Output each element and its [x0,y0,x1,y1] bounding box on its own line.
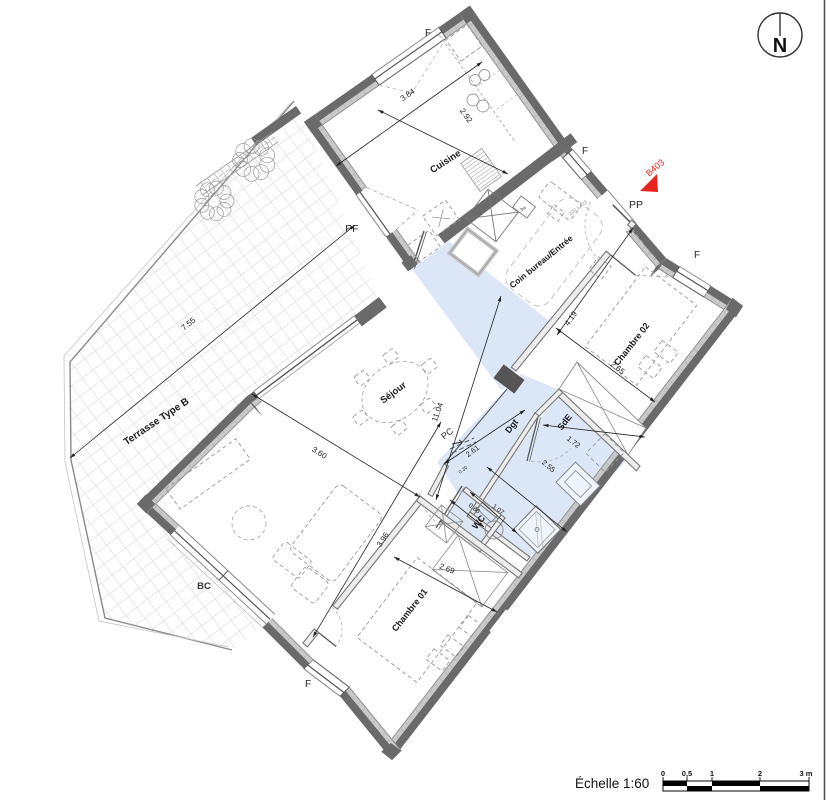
svg-text:BC: BC [197,581,211,592]
svg-text:1: 1 [710,769,714,778]
svg-text:0,5: 0,5 [682,769,692,778]
svg-text:N: N [773,35,787,57]
svg-text:PP: PP [629,199,643,211]
svg-text:F: F [305,679,311,690]
svg-text:F: F [425,28,431,39]
svg-text:F: F [582,146,588,157]
svg-text:F: F [694,250,700,261]
svg-text:2: 2 [758,769,762,778]
svg-text:3 m: 3 m [800,769,813,778]
svg-text:PF: PF [345,223,358,235]
svg-text:0: 0 [661,769,665,778]
svg-text:Échelle 1:60: Échelle 1:60 [575,776,649,791]
